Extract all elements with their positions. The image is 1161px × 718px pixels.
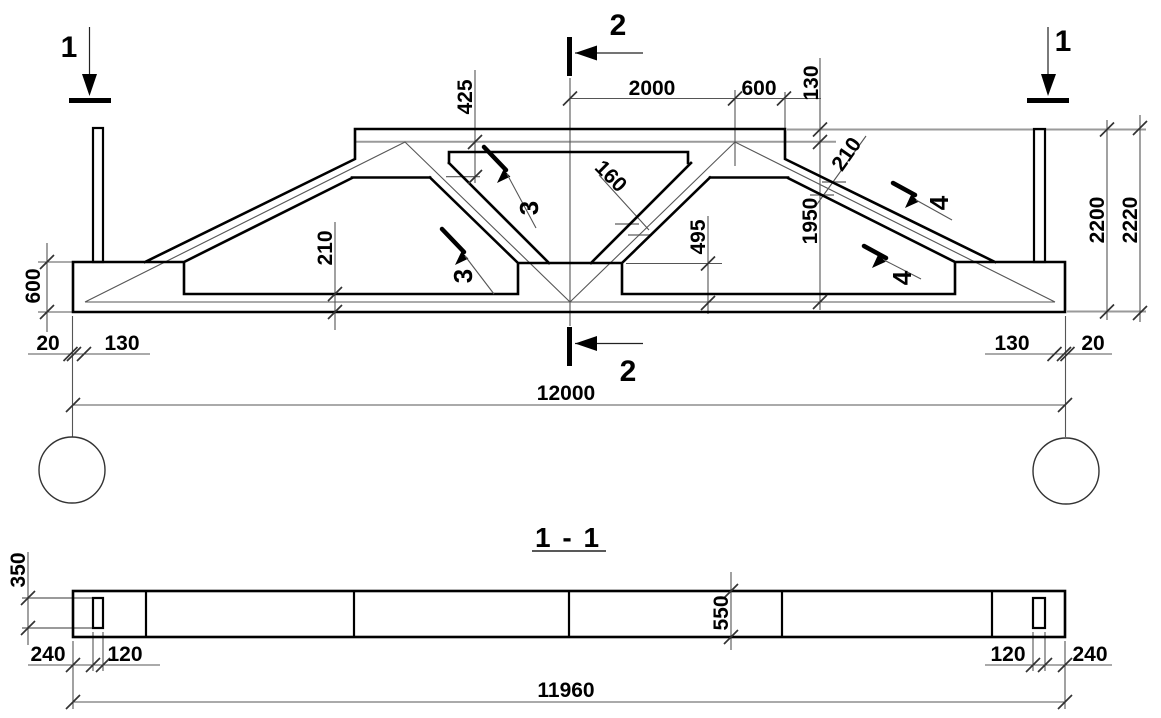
dim-130-flange: 130 [800,65,823,100]
aux-extension-lines [22,130,1146,629]
arrow-down-icon [82,74,97,96]
arrow-left-icon [575,336,597,351]
cut-plane-bar [567,37,572,76]
dim-20-right: 20 [1081,332,1104,355]
section-post-left [93,598,103,628]
cut-label: 4 [887,270,917,285]
cut-stroke [442,229,464,252]
section-view-title: 1 - 1 [535,522,601,553]
arrow-left-icon [575,46,597,61]
dim-240-left: 240 [30,643,65,666]
dim-130-right: 130 [994,332,1029,355]
dim-495: 495 [687,219,710,254]
left-post [93,128,103,262]
dim-11960: 11960 [537,679,594,702]
arrow-down-icon [1041,74,1056,96]
section-marker-2-top: 2 [567,9,643,76]
dim-12000: 12000 [537,382,595,405]
dim-20-left: 20 [36,332,59,355]
dim-2000: 2000 [629,77,676,100]
dim-240-right: 240 [1072,643,1107,666]
marker-label: 1 [61,31,78,64]
dim-1950: 1950 [799,198,822,245]
dim-130-left: 130 [104,332,139,355]
cut-stroke [893,183,915,195]
section-bar-joints [146,591,992,637]
cut-mark-4-lower: 4 [864,246,921,285]
marker-label: 2 [610,9,627,42]
dim-600-top: 600 [741,77,776,100]
grid-circle-right [1033,438,1099,504]
marker-label: 1 [1055,25,1072,58]
dim-210-right: 210 [827,133,866,175]
section-marker-2-bottom: 2 [567,327,643,388]
dim-600-left: 600 [22,268,45,303]
cut-mark-3-lower: 3 [442,229,494,294]
cut-stroke [484,147,506,170]
cut-stroke [864,246,886,258]
truss-drawing: 1 1 2 2 3 3 4 [0,0,1161,718]
cut-label: 3 [448,269,478,283]
section-post-right [1033,598,1045,628]
cut-plane-bar [69,98,111,103]
dim-120-right: 120 [990,643,1025,666]
dim-350: 350 [7,552,30,587]
right-post [1034,129,1045,262]
dim-2220: 2220 [1119,197,1142,244]
section-marker-1-left: 1 [61,27,111,103]
grid-circle-left [39,437,105,503]
cut-plane-bar [567,327,572,366]
dim-2200: 2200 [1086,197,1109,244]
dim-550: 550 [710,595,733,630]
dim-210-left: 210 [314,230,337,265]
cut-label: 3 [514,201,544,215]
drawing-canvas: 1 1 2 2 3 3 4 [0,0,1161,718]
dim-160: 160 [590,156,631,197]
cut-label: 4 [924,195,954,210]
section-marker-1-right: 1 [1027,25,1071,103]
cut-mark-3-upper: 3 [484,147,544,228]
cut-mark-4-upper: 4 [893,183,954,220]
dim-425: 425 [454,79,477,114]
marker-label: 2 [620,355,637,388]
cut-plane-bar [1027,98,1069,103]
dim-120-left: 120 [107,643,142,666]
